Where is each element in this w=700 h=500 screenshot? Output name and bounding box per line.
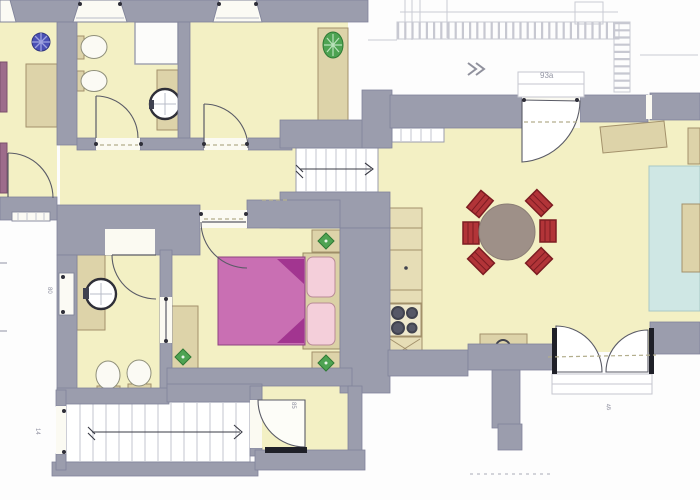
radiator-body [392, 128, 444, 142]
toilet [96, 361, 120, 389]
sketch-hatched-band [397, 22, 619, 39]
window-opening [59, 273, 74, 315]
wall-segment [56, 390, 66, 406]
chair [540, 220, 556, 242]
wall-segment [468, 344, 553, 370]
wall-segment [140, 138, 204, 150]
pillow [307, 257, 335, 297]
wardrobe-strip [0, 143, 7, 193]
wall-segment [492, 370, 520, 428]
floor-plan-svg: 93a 85 46 80 14 [0, 0, 700, 500]
plant-dot [325, 240, 328, 243]
door-leaf [552, 328, 557, 374]
cabinet [688, 128, 700, 164]
kitchen-counter [388, 208, 422, 360]
upper-stairs [296, 148, 378, 192]
dim-label: 46 [604, 403, 611, 411]
wall-segment [650, 93, 700, 120]
burner [392, 307, 404, 319]
bidet [81, 71, 107, 92]
washbasin-tap [149, 100, 154, 109]
radiator-icon [323, 32, 343, 58]
wall-segment [498, 424, 522, 450]
wall-segment [167, 368, 352, 386]
floor-plan: 93a 85 46 80 14 [0, 0, 700, 500]
dim-tick [0, 330, 7, 332]
wall-segment [57, 388, 169, 404]
washbasin-tap [83, 288, 89, 299]
wall-segment [52, 462, 258, 476]
door-gap [204, 138, 248, 150]
toilet [81, 36, 107, 59]
dim-tick [0, 262, 7, 264]
wall-segment [178, 22, 190, 145]
wall-segment [167, 384, 262, 402]
wall-segment [580, 95, 648, 122]
wall-segment [650, 322, 700, 354]
sketch-box [575, 2, 603, 24]
window-slit [646, 95, 652, 119]
coffee-table [682, 204, 700, 272]
wall-segment [362, 90, 392, 148]
lower-stairs [66, 402, 250, 462]
entrance-threshold [265, 447, 307, 453]
door-leaf [649, 328, 654, 374]
wall-segment [250, 386, 262, 400]
wall-segment [348, 386, 362, 452]
burner [407, 308, 417, 318]
sketch-chevrons [468, 63, 484, 75]
fan-icon [32, 33, 50, 51]
dim-label: 85 [290, 402, 296, 409]
wall-segment [56, 454, 66, 470]
plant-dot [325, 362, 328, 365]
single-bed [26, 64, 57, 127]
living-radiator-top [392, 128, 444, 142]
wardrobe [168, 306, 198, 378]
vent-window [12, 212, 50, 221]
chevron-icon [468, 63, 476, 75]
bidet [127, 360, 151, 386]
sketch-hatched-ladder [614, 22, 630, 92]
door-niche [105, 229, 155, 255]
wall-segment [247, 200, 340, 228]
round-table [479, 204, 535, 260]
burner [408, 324, 417, 333]
sideboard [600, 121, 667, 153]
wardrobe-strip [0, 62, 7, 112]
chair [463, 222, 479, 244]
wall-segment [388, 350, 468, 376]
wall-segment [77, 138, 96, 150]
stair-opening [56, 406, 66, 454]
dim-label: 80 [46, 287, 52, 294]
plant-dot [182, 356, 185, 359]
sketch-label: 93a [540, 71, 554, 80]
cabinet-handle [404, 266, 408, 270]
wall-segment [390, 95, 522, 128]
pillow [307, 303, 335, 345]
door-gap [96, 138, 140, 150]
dim-label: 14 [34, 428, 40, 435]
wall-segment [0, 0, 368, 22]
shower-tray [135, 22, 178, 64]
burner [392, 322, 404, 334]
wall-segment [57, 22, 77, 145]
